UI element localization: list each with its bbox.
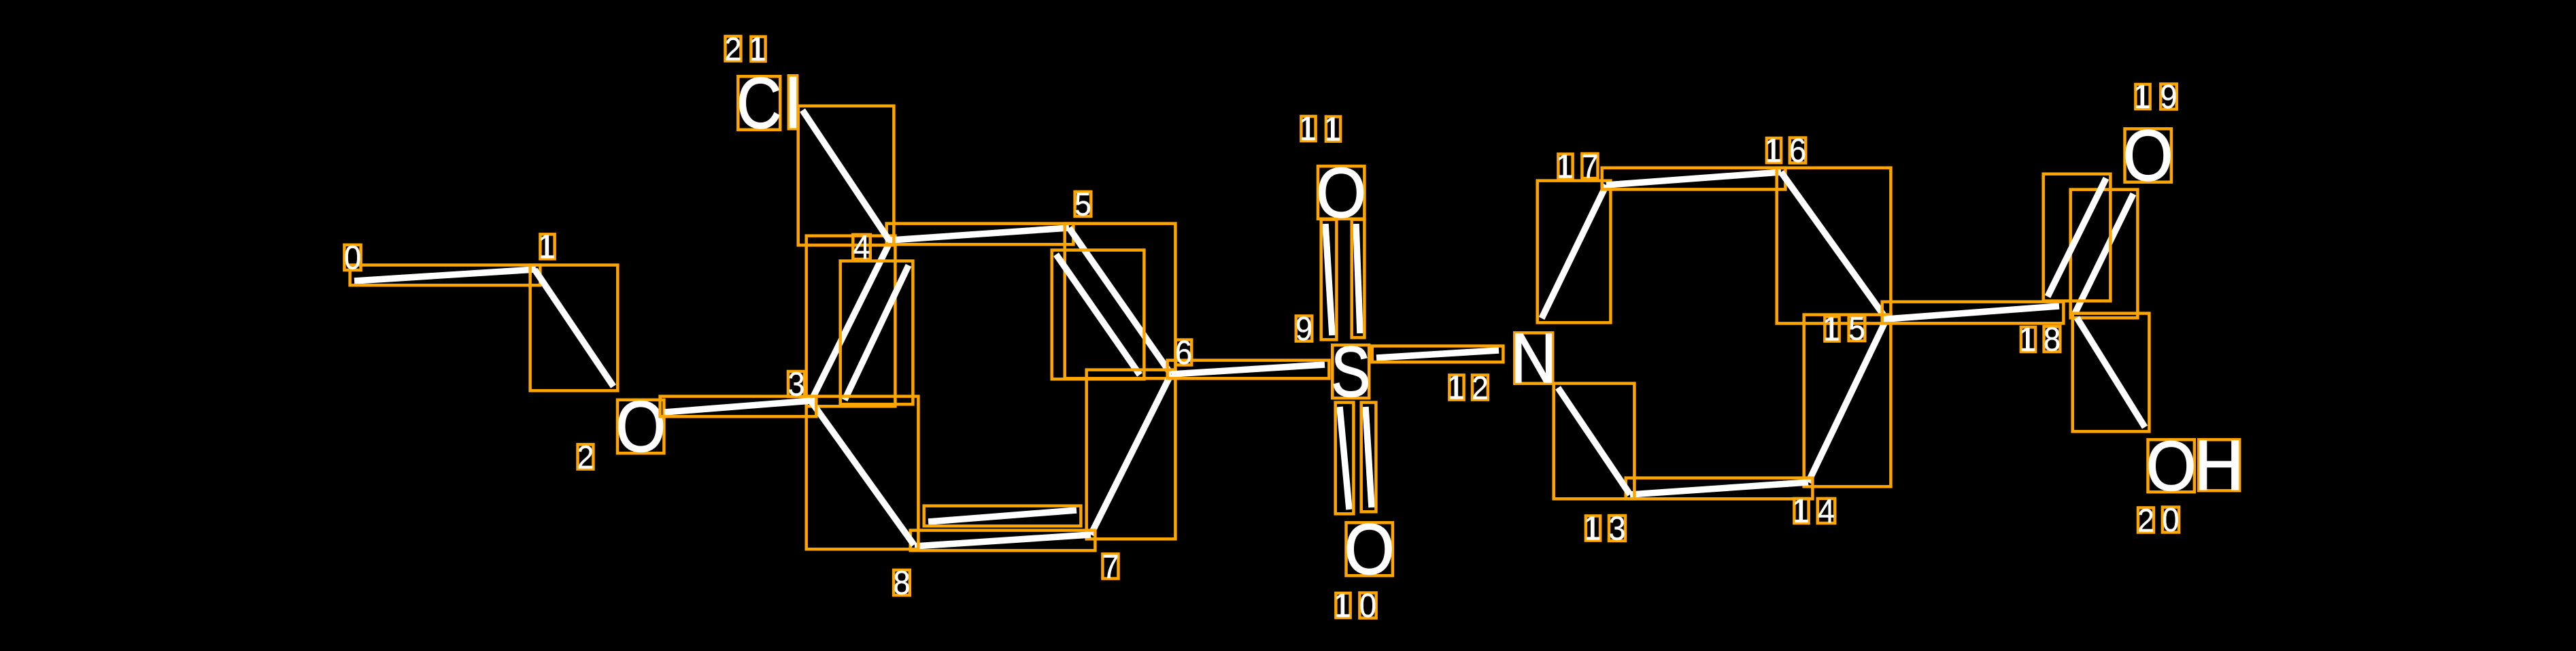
svg-text:7: 7 [1581,148,1598,185]
svg-text:9: 9 [1295,311,1312,348]
svg-text:C: C [736,63,781,144]
svg-text:6: 6 [1789,133,1806,169]
svg-text:0: 0 [344,239,361,276]
svg-text:7: 7 [1102,548,1119,585]
svg-text:O: O [1344,510,1395,589]
svg-text:8: 8 [893,565,910,601]
svg-text:2: 2 [577,439,594,475]
svg-text:3: 3 [787,366,804,403]
svg-text:H: H [2194,425,2244,504]
svg-text:N: N [1510,319,1557,397]
svg-text:O: O [615,386,666,467]
svg-text:2: 2 [1472,369,1489,406]
svg-text:5: 5 [1848,310,1865,347]
svg-text:4: 4 [853,229,870,266]
svg-text:6: 6 [1175,335,1192,371]
svg-text:2: 2 [2137,502,2154,539]
svg-text:S: S [1331,332,1370,412]
svg-text:0: 0 [1359,588,1376,624]
svg-text:0: 0 [2162,502,2179,539]
svg-text:3: 3 [1608,510,1625,547]
svg-text:2: 2 [725,31,742,67]
svg-text:8: 8 [2044,321,2061,358]
svg-text:5: 5 [1074,186,1091,222]
svg-text:O: O [2123,116,2173,196]
svg-text:O: O [2146,426,2197,505]
svg-text:4: 4 [1818,493,1835,530]
svg-text:9: 9 [2160,79,2177,116]
